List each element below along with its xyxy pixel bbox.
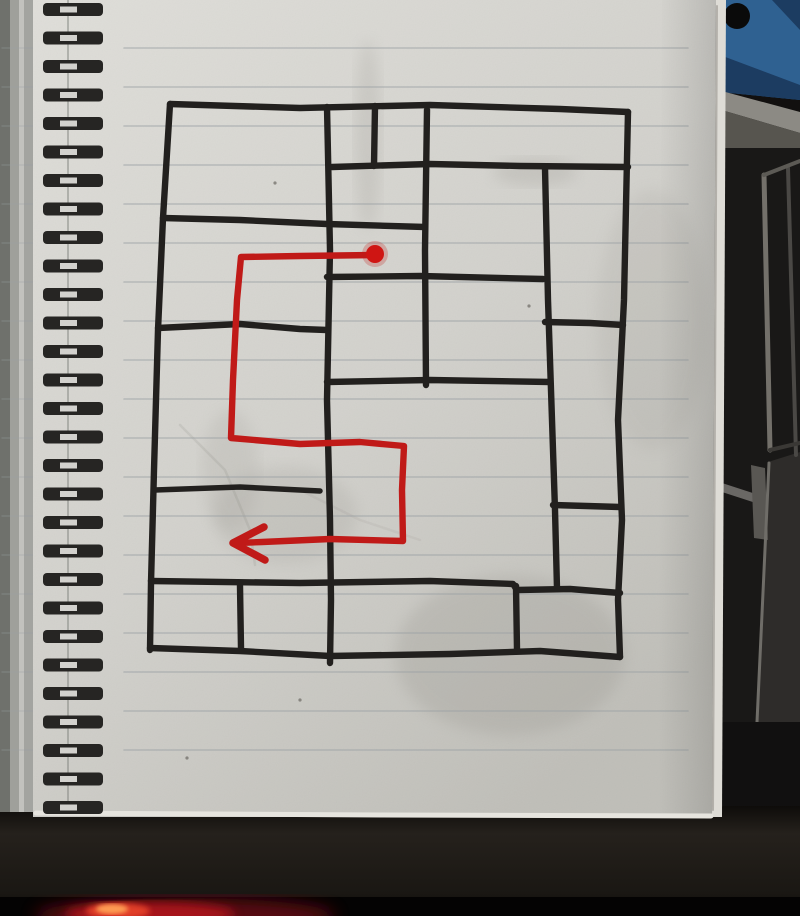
game-screenshot (0, 0, 800, 916)
desk-surface (0, 806, 800, 916)
notebook-cover-edge (0, 0, 34, 812)
route-start-dot (362, 241, 388, 267)
spiral-binding (43, 0, 103, 814)
notebook-page[interactable] (0, 0, 800, 916)
notebook[interactable] (0, 0, 800, 916)
leaning-panel (716, 148, 800, 820)
desk-shadow-band (0, 806, 800, 916)
blue-crate (720, 0, 800, 100)
